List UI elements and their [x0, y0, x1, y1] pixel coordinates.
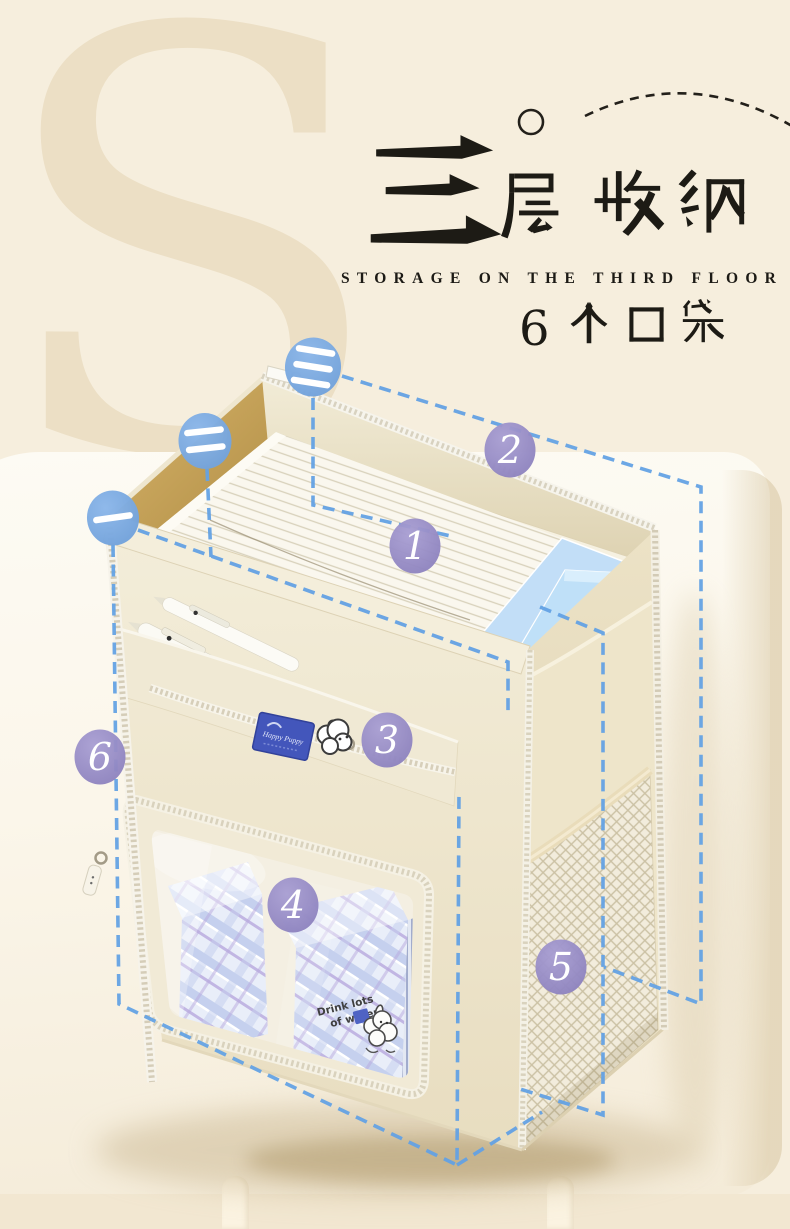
front-pocket-zipper-pull: [82, 853, 107, 897]
badge-pocket-6: 6: [75, 730, 126, 785]
badge-pocket-5-number: 5: [549, 945, 573, 989]
pocket-count-char-ge: [571, 302, 608, 343]
title-char-ceng: [501, 174, 558, 239]
pocket-count-digit: 6: [519, 301, 550, 357]
title-char-san: [371, 135, 502, 244]
badge-pocket-3: 3: [362, 713, 413, 768]
pocket-count-char-dai: [683, 299, 724, 342]
pocket-count-line: 6: [519, 299, 724, 357]
product-scene: Happy Puppy: [0, 0, 790, 1229]
decor-dashed-arc: [585, 93, 790, 126]
title-block: STORAGE ON THE THIRD FLOOR 6: [341, 93, 790, 357]
badge-pocket-1: 1: [390, 519, 441, 574]
badge-pocket-2-number: 2: [497, 428, 522, 472]
badge-pocket-4-number: 4: [280, 883, 305, 927]
badge-pocket-4: 4: [268, 878, 319, 933]
badge-pocket-5: 5: [536, 940, 587, 995]
title-char-na: [679, 169, 745, 232]
badge-pocket-6-number: 6: [88, 735, 112, 779]
title-heading-en: STORAGE ON THE THIRD FLOOR: [341, 270, 783, 287]
badge-pocket-2: 2: [485, 423, 536, 478]
badge-pocket-1-number: 1: [403, 524, 427, 568]
decor-circle-icon: [519, 110, 543, 134]
title-char-shou: [595, 169, 665, 235]
page-background: { "page": { "background_color": "#f6eedd…: [0, 0, 790, 1229]
badge-pocket-3-number: 3: [375, 718, 399, 762]
pocket-count-char-kou: [629, 307, 663, 341]
